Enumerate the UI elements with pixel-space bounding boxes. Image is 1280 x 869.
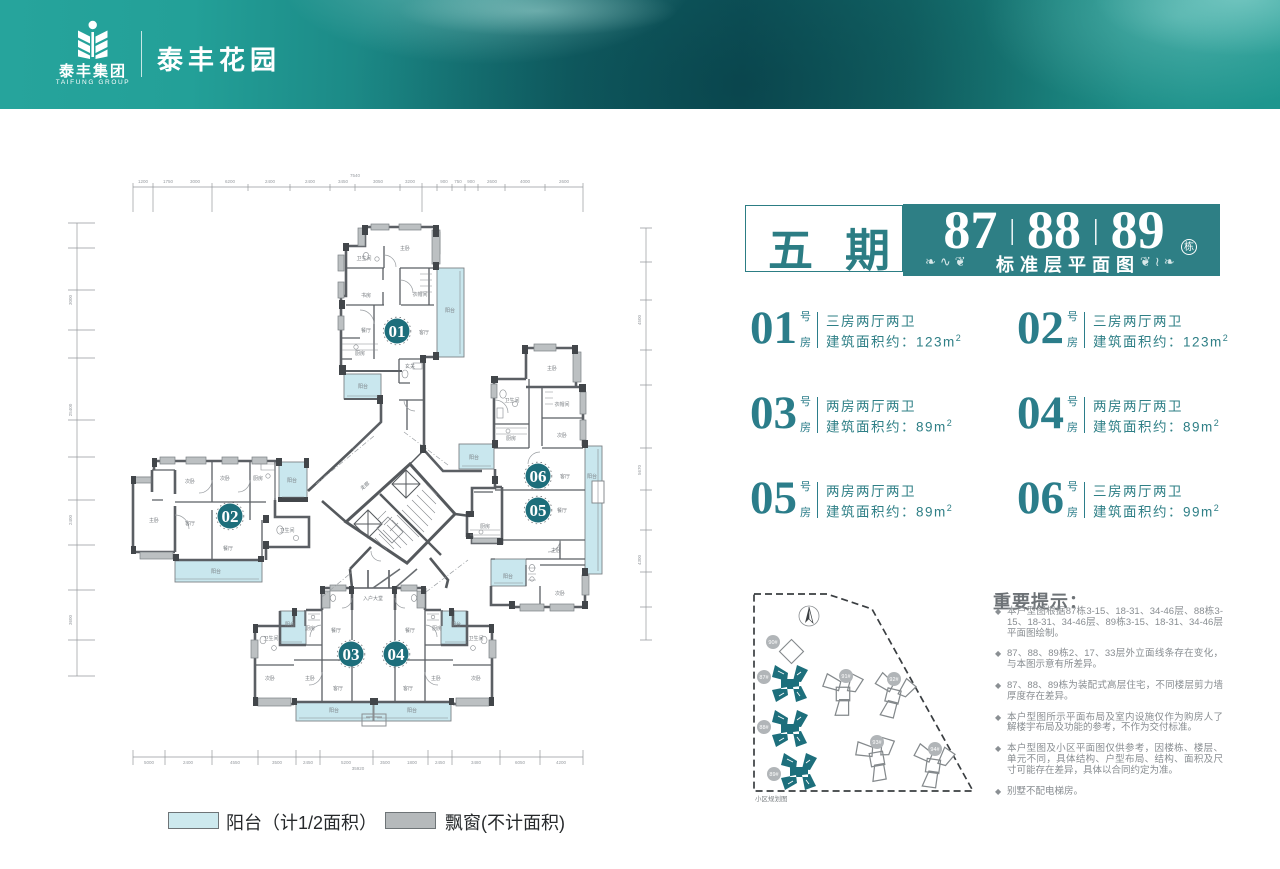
svg-text:5670: 5670 xyxy=(637,464,642,475)
svg-text:餐厅: 餐厅 xyxy=(557,507,567,514)
svg-text:06: 06 xyxy=(530,467,547,486)
svg-text:餐厅: 餐厅 xyxy=(405,627,415,634)
svg-text:客厅: 客厅 xyxy=(560,473,570,480)
svg-text:2600: 2600 xyxy=(487,179,498,184)
svg-text:玄关: 玄关 xyxy=(405,363,415,370)
svg-text:餐厅: 餐厅 xyxy=(361,327,371,334)
svg-text:2450: 2450 xyxy=(303,760,314,765)
svg-text:35920: 35920 xyxy=(352,766,365,771)
svg-text:88#: 88# xyxy=(759,725,769,731)
svg-text:94#: 94# xyxy=(930,747,940,753)
svg-text:客厅: 客厅 xyxy=(419,329,429,336)
svg-text:卫生间: 卫生间 xyxy=(279,527,294,534)
svg-text:阳台: 阳台 xyxy=(329,707,339,714)
svg-text:01: 01 xyxy=(389,322,406,341)
svg-text:750: 750 xyxy=(454,179,462,184)
svg-text:卫生间: 卫生间 xyxy=(356,255,371,262)
svg-text:阳台: 阳台 xyxy=(407,707,417,714)
svg-text:3000: 3000 xyxy=(68,294,73,305)
svg-text:87#: 87# xyxy=(759,675,769,681)
svg-text:5200: 5200 xyxy=(341,760,352,765)
svg-text:2400: 2400 xyxy=(265,179,276,184)
svg-text:4300: 4300 xyxy=(637,554,642,565)
svg-text:走廊: 走廊 xyxy=(359,480,371,492)
svg-text:次卧: 次卧 xyxy=(471,675,481,682)
svg-text:主卧: 主卧 xyxy=(431,675,441,682)
svg-text:厨房: 厨房 xyxy=(253,475,263,482)
svg-text:7540: 7540 xyxy=(350,173,361,178)
svg-text:厨房: 厨房 xyxy=(506,435,516,442)
svg-text:衣帽间: 衣帽间 xyxy=(412,291,427,298)
svg-text:2400: 2400 xyxy=(68,514,73,525)
svg-text:小区规划图: 小区规划图 xyxy=(755,794,788,803)
svg-text:主卧: 主卧 xyxy=(400,245,410,252)
svg-text:次卧: 次卧 xyxy=(185,478,195,485)
svg-text:900: 900 xyxy=(440,179,448,184)
svg-text:书房: 书房 xyxy=(361,292,371,299)
svg-text:4550: 4550 xyxy=(230,760,241,765)
svg-text:阳台: 阳台 xyxy=(287,477,297,484)
svg-text:1200: 1200 xyxy=(138,179,149,184)
svg-text:3450: 3450 xyxy=(338,179,349,184)
svg-text:4000: 4000 xyxy=(520,179,531,184)
svg-text:4200: 4200 xyxy=(556,760,567,765)
svg-text:1750: 1750 xyxy=(163,179,174,184)
svg-text:阳台: 阳台 xyxy=(358,383,368,390)
svg-text:25400: 25400 xyxy=(68,403,73,416)
svg-text:05: 05 xyxy=(530,501,547,520)
svg-text:3480: 3480 xyxy=(471,760,482,765)
svg-text:2450: 2450 xyxy=(435,760,446,765)
svg-text:3500: 3500 xyxy=(272,760,283,765)
svg-text:厨房: 厨房 xyxy=(432,625,442,632)
svg-text:阳台: 阳台 xyxy=(587,473,597,480)
svg-text:1800: 1800 xyxy=(407,760,418,765)
svg-text:04: 04 xyxy=(388,645,406,664)
svg-text:阳台: 阳台 xyxy=(211,568,221,575)
svg-text:客厅: 客厅 xyxy=(333,685,343,692)
svg-text:6050: 6050 xyxy=(515,760,526,765)
svg-text:3000: 3000 xyxy=(190,179,201,184)
svg-text:厨房: 厨房 xyxy=(480,523,490,530)
svg-text:衣帽间: 衣帽间 xyxy=(554,401,569,408)
svg-text:阳台: 阳台 xyxy=(285,621,295,628)
svg-text:3500: 3500 xyxy=(380,760,391,765)
svg-text:92#: 92# xyxy=(889,677,899,683)
svg-text:90#: 90# xyxy=(768,640,778,646)
svg-text:2400: 2400 xyxy=(183,760,194,765)
svg-text:阳台: 阳台 xyxy=(445,307,455,314)
svg-text:3600: 3600 xyxy=(68,614,73,625)
svg-text:6200: 6200 xyxy=(225,179,236,184)
svg-text:93#: 93# xyxy=(872,740,882,746)
svg-text:2600: 2600 xyxy=(559,179,570,184)
svg-text:次卧: 次卧 xyxy=(555,590,565,597)
svg-text:2400: 2400 xyxy=(305,179,316,184)
svg-text:900: 900 xyxy=(467,179,475,184)
svg-text:客厅: 客厅 xyxy=(403,685,413,692)
svg-text:主卧: 主卧 xyxy=(305,675,315,682)
svg-text:91#: 91# xyxy=(841,674,851,680)
svg-text:厨房: 厨房 xyxy=(355,350,365,357)
svg-text:主卧: 主卧 xyxy=(149,517,159,524)
svg-text:5000: 5000 xyxy=(144,760,155,765)
svg-text:卫生间: 卫生间 xyxy=(263,635,278,642)
svg-text:3050: 3050 xyxy=(373,179,384,184)
svg-text:餐厅: 餐厅 xyxy=(223,545,233,552)
svg-text:02: 02 xyxy=(222,507,239,526)
svg-text:入户大堂: 入户大堂 xyxy=(363,595,383,602)
svg-text:主卧: 主卧 xyxy=(551,547,561,554)
svg-text:次卧: 次卧 xyxy=(265,675,275,682)
svg-text:3200: 3200 xyxy=(405,179,416,184)
svg-text:客厅: 客厅 xyxy=(185,520,195,527)
svg-text:03: 03 xyxy=(343,645,360,664)
svg-text:阳台: 阳台 xyxy=(451,621,461,628)
svg-text:阳台: 阳台 xyxy=(503,573,513,580)
svg-text:餐厅: 餐厅 xyxy=(331,627,341,634)
svg-text:4500: 4500 xyxy=(637,314,642,325)
svg-text:主卧: 主卧 xyxy=(547,365,557,372)
svg-text:次卧: 次卧 xyxy=(557,432,567,439)
svg-text:次卧: 次卧 xyxy=(220,475,230,482)
svg-text:89#: 89# xyxy=(769,772,779,778)
svg-text:阳台: 阳台 xyxy=(469,454,479,461)
svg-text:卫生间: 卫生间 xyxy=(504,397,519,404)
svg-text:卫生间: 卫生间 xyxy=(468,635,483,642)
svg-text:厨房: 厨房 xyxy=(305,625,315,632)
